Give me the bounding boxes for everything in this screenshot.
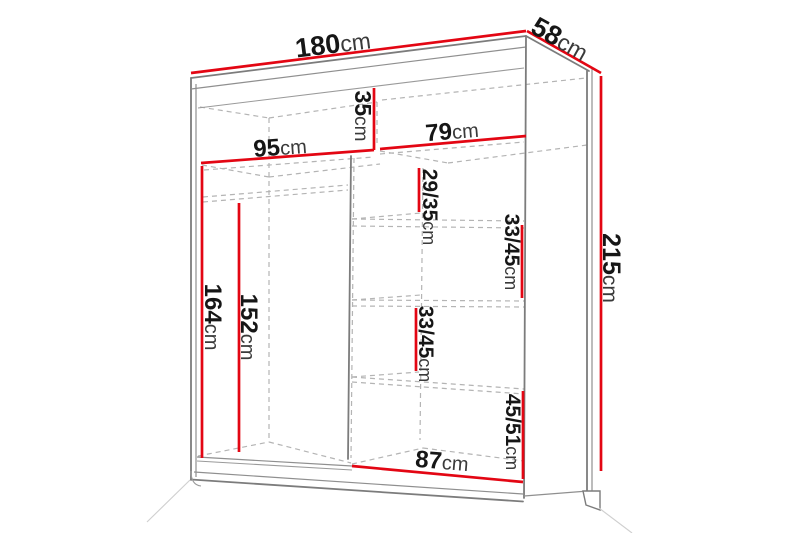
- interior-floor-thickness: [197, 461, 352, 470]
- shelf3-depth-diagonal: [352, 295, 421, 300]
- label-shelf-gap-1: 29/35cm: [418, 169, 441, 246]
- label-bottom-compartment: 45/51cm: [501, 394, 524, 471]
- hanging-rail-top: [203, 185, 348, 197]
- label-depth: 58cm: [526, 11, 594, 67]
- label-left-section-width: 95cm: [252, 132, 307, 163]
- shelf1-depth-diagonal-left: [202, 165, 269, 177]
- label-top-compartment-height: 35cm: [350, 91, 376, 142]
- floor-depth-diagonal-left: [198, 442, 269, 456]
- divider-front-edge: [348, 156, 351, 459]
- wardrobe-dimension-diagram: 180cm 58cm 215cm 95cm 35cm 79cm 164cm 15…: [0, 0, 800, 533]
- floor-depth-diagonal-right: [352, 448, 423, 464]
- floor-shadow-right: [599, 508, 632, 533]
- shelf3-back-edge: [352, 306, 524, 307]
- interior-floor-front-edge: [197, 457, 352, 466]
- shelf4-front-edge: [352, 377, 524, 389]
- ceiling-depth-diagonal-left: [200, 107, 269, 118]
- side-bottom-edge: [524, 491, 588, 496]
- divider-thickness-edge: [351, 158, 354, 458]
- shelf1-back-edge-right: [448, 145, 587, 163]
- shelf4-depth-diagonal: [352, 372, 419, 377]
- label-width: 180cm: [294, 24, 373, 63]
- floor-shadow-left: [147, 480, 190, 522]
- shelf3-front-edge: [352, 300, 524, 301]
- label-left-clear-height: 164cm: [199, 284, 226, 351]
- label-shelf-gap-2: 33/45cm: [500, 214, 523, 291]
- label-bottom-width: 87cm: [414, 446, 469, 477]
- floor-back-edge-left: [269, 442, 351, 463]
- dimension-lines: [191, 31, 601, 482]
- label-right-section-width: 79cm: [424, 116, 479, 147]
- label-rail-height: 152cm: [235, 294, 262, 361]
- shelf1-back-edge-left: [269, 164, 380, 177]
- rear-right-foot: [583, 491, 600, 510]
- hanging-rail-bottom: [203, 190, 348, 202]
- label-height: 215cm: [597, 233, 625, 303]
- shelf4-back-edge: [352, 382, 524, 394]
- label-shelf-gap-3: 33/45cm: [414, 306, 437, 383]
- shelf2-depth-diagonal: [352, 213, 421, 219]
- diagram-canvas: 180cm 58cm 215cm 95cm 35cm 79cm 164cm 15…: [0, 0, 800, 533]
